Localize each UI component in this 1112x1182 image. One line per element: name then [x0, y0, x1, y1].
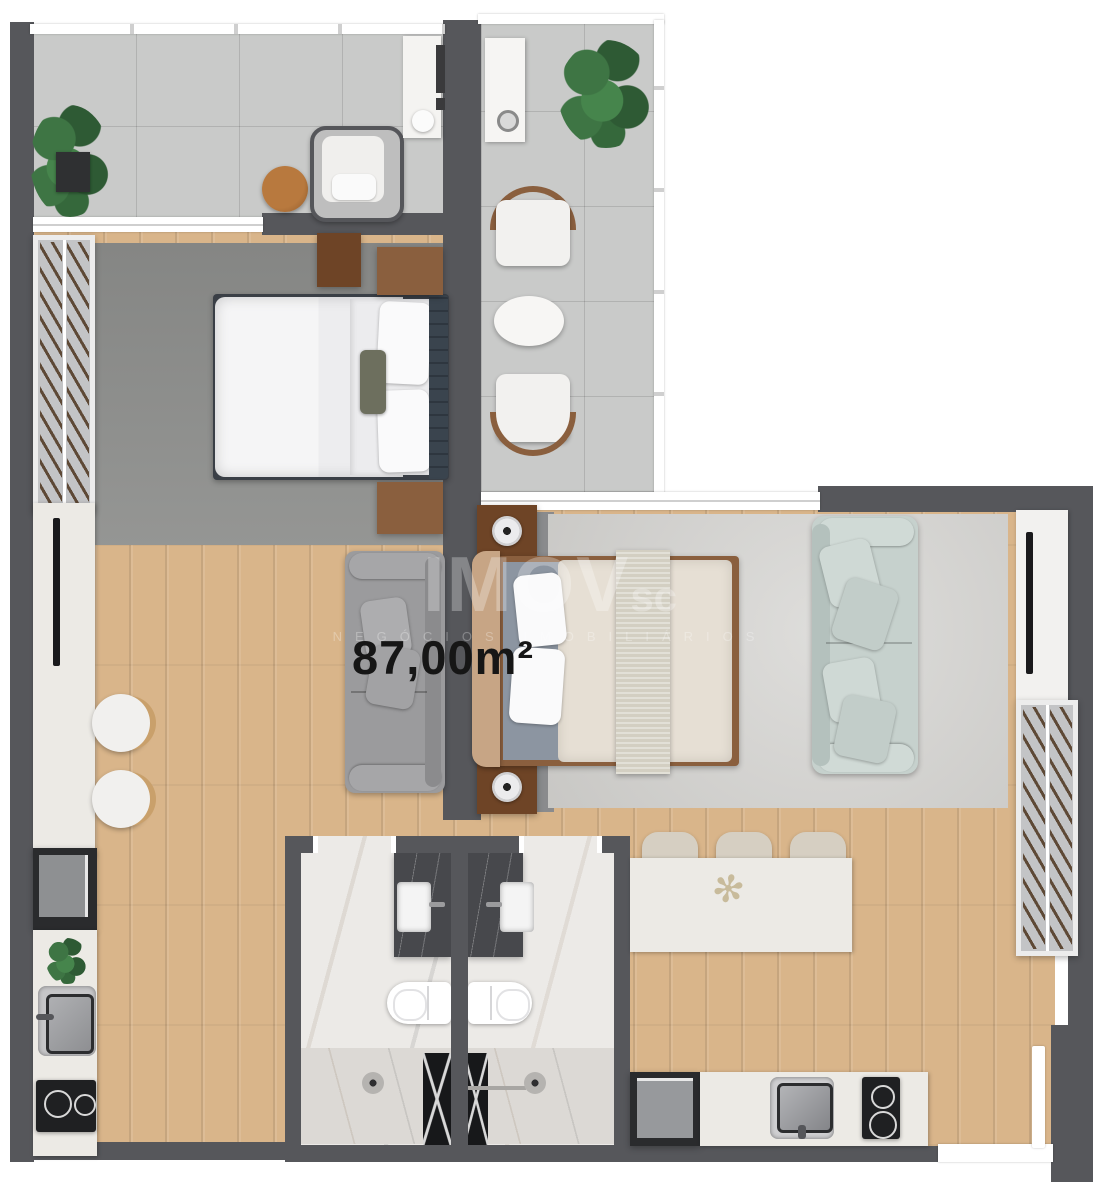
desk-stool	[412, 110, 434, 132]
toilet2-seat	[496, 989, 530, 1021]
cooktop-right-burner-2	[869, 1111, 897, 1139]
bedroom1-wardrobe	[33, 235, 95, 513]
wardrobe-right-hangers-right	[1050, 707, 1072, 949]
balcony-middle-plant	[558, 40, 654, 148]
bathroom2-shower-area	[468, 1048, 614, 1144]
wardrobe-right-hangers-left	[1023, 707, 1045, 949]
chair-bottom-back-arc	[490, 412, 576, 456]
sink-left-basin	[46, 994, 94, 1054]
wall-bottom-right	[630, 1146, 940, 1162]
balcony-armchair	[310, 126, 404, 222]
bathroom2-door-jamb-left	[519, 836, 524, 853]
chair-top-cushion	[496, 200, 570, 266]
bathroom2-faucet	[486, 902, 502, 907]
balcony-oval-table	[494, 296, 564, 346]
bathroom1-shower-drain	[362, 1072, 384, 1094]
balcony-middle-railing-right	[654, 20, 664, 494]
cabinet-knob	[497, 110, 519, 132]
toilet1-tank-line	[427, 986, 429, 1020]
appliance-left-panel	[39, 855, 87, 917]
bed1-accent-pillow	[360, 350, 386, 414]
balcony-side-table	[262, 166, 308, 212]
wardrobe-right-divider	[1046, 705, 1049, 951]
bedroom1-sliding-door	[33, 217, 263, 232]
bed2-lamp-bottom	[492, 772, 522, 802]
kitchen-left-appliance	[33, 848, 97, 930]
counter-stool-1	[92, 694, 150, 752]
wall-bathroom-bottom	[285, 1145, 630, 1162]
bed1-nightstand-bottom	[377, 482, 443, 534]
wardrobe1-hangers-left	[40, 242, 62, 506]
cooktop-left	[36, 1080, 96, 1132]
sink-left-faucet	[36, 1014, 54, 1020]
bed1-headboard	[429, 295, 448, 479]
bathroom2-shower-drain	[524, 1072, 546, 1094]
watermark-brand-suffix: sc	[630, 573, 677, 620]
appliance-right-panel	[637, 1080, 693, 1138]
bathroom1-sink	[397, 882, 431, 932]
sliding-door-track	[33, 224, 263, 226]
sink-right-faucet	[798, 1125, 806, 1139]
appliance-right-handle	[637, 1078, 693, 1081]
balcony-middle-railing-top	[478, 14, 664, 24]
bathroom2-shower-arm	[468, 1086, 526, 1090]
bathroom1-faucet	[429, 902, 445, 907]
sofa-mint	[812, 516, 918, 774]
bathroom2-toilet	[468, 982, 532, 1024]
tv-panel-right	[1016, 510, 1068, 702]
watermark-brand: IMOV	[423, 540, 630, 628]
floorplan-canvas: ✻ IMOVsc NEGÓCIOS IMOBILIÁRIOS 87,0	[0, 0, 1112, 1182]
bathroom1-toilet	[387, 982, 451, 1024]
balcony-chair-bottom	[488, 370, 578, 456]
wall-living-top	[818, 486, 1093, 512]
entry-door-leaf	[1032, 1046, 1045, 1148]
bed1-nightstand-top	[377, 247, 443, 295]
bathroom2-door-jamb-right	[597, 836, 602, 853]
tv-left	[53, 518, 60, 666]
wall-bathroom-right	[614, 836, 630, 1162]
cooktop-right-burner-1	[871, 1085, 895, 1109]
cooktop-left-burner-1	[44, 1090, 72, 1118]
cooktop-left-burner-2	[74, 1094, 96, 1116]
counter-stool-2	[92, 770, 150, 828]
kitchen-right-appliance	[630, 1072, 700, 1146]
tv-right	[1026, 532, 1033, 674]
toilet2-tank-line	[490, 986, 492, 1020]
area-label: 87,00m²	[352, 630, 534, 685]
balcony-middle-cabinet	[485, 38, 525, 142]
kitchen-plant	[46, 938, 88, 984]
kitchen-left-sink	[38, 986, 96, 1056]
wall-left-exterior	[10, 22, 34, 1162]
bathroom1-door-jamb-left	[313, 836, 318, 853]
cooktop-right	[862, 1077, 900, 1139]
wall-bathroom-center	[451, 836, 468, 1162]
bathroom2-sink	[500, 882, 534, 932]
bathroom1-shower-panel	[423, 1053, 451, 1145]
balcony-left-plant-pot	[56, 152, 90, 192]
wardrobe1-divider	[63, 240, 66, 508]
balcony-left-railing	[30, 24, 445, 34]
wall-bathroom-left	[285, 836, 301, 1162]
appliance-left-handle	[85, 855, 88, 917]
bathroom1-door-jamb-right	[391, 836, 396, 853]
wall-entry-step	[1051, 1025, 1093, 1182]
balcony-chair-top	[488, 186, 578, 270]
kitchen-right-sink	[770, 1077, 834, 1139]
window-frame-line	[481, 500, 820, 502]
desk-equipment	[436, 45, 445, 93]
armchair-pillow	[332, 174, 376, 200]
toilet1-seat	[393, 989, 427, 1021]
wardrobe1-hangers-right	[67, 242, 89, 506]
tv-counter-left	[33, 503, 95, 857]
wardrobe-right	[1016, 700, 1078, 956]
wall-bathroom-top-b	[394, 836, 524, 853]
wall-bathroom-top-c	[600, 836, 630, 853]
desk-equipment-small	[436, 98, 445, 110]
bedroom1-dresser	[317, 233, 361, 287]
